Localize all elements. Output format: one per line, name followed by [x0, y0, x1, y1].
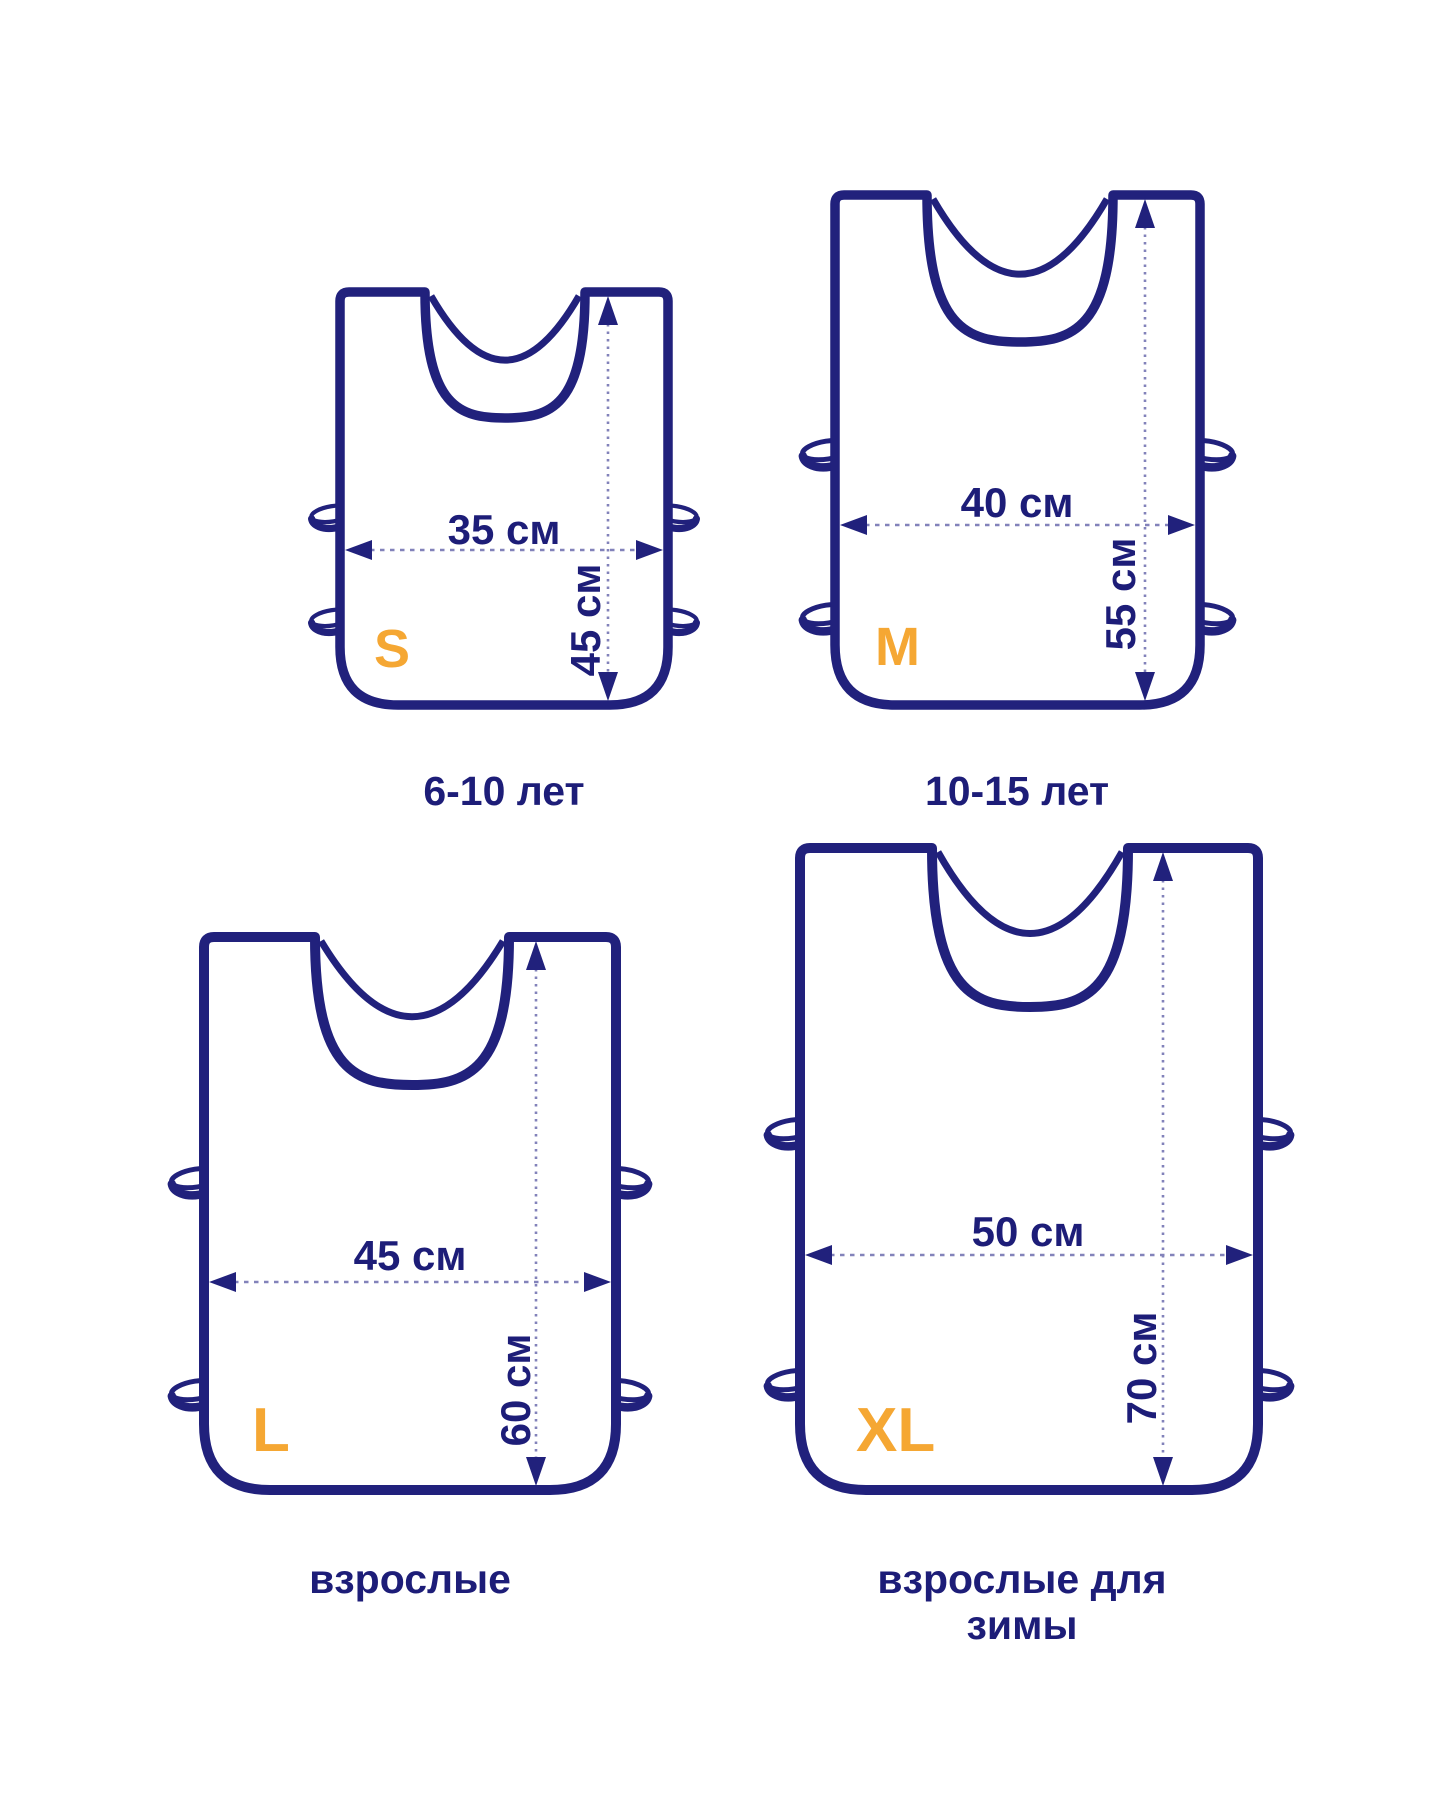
vest-m-size-letter: M: [875, 618, 920, 676]
vest-s-age-caption: 6-10 лет: [344, 768, 664, 814]
vest-m-width-label: 40 см: [961, 479, 1074, 527]
vest-l-drawing: [144, 923, 676, 1504]
vest-m-drawing: [775, 181, 1260, 719]
vest-outline: [800, 848, 1258, 1490]
neckline-inner-arc: [431, 296, 579, 360]
vest-m-age-caption: 10-15 лет: [857, 768, 1177, 814]
vest-s-drawing: [280, 278, 728, 719]
neckline-inner-arc: [933, 199, 1107, 274]
vest-xl-height-label: 70 см: [1118, 1312, 1166, 1425]
vest-l-size-letter: L: [252, 1398, 290, 1464]
vest-xl-drawing: [740, 834, 1318, 1504]
neckline-inner-arc: [321, 941, 503, 1017]
neckline-inner-arc: [938, 852, 1122, 933]
vest-s-size-letter: S: [374, 620, 410, 678]
vest-xl-width-label: 50 см: [972, 1208, 1085, 1256]
vest-l-height-label: 60 см: [492, 1334, 540, 1447]
vest-m-height-label: 55 см: [1097, 538, 1145, 651]
vest-l-age-caption: взрослые: [250, 1556, 570, 1602]
vest-size-chart: 35 см 45 см S 6-10 лет 40 см 55 см M 10-…: [0, 0, 1446, 1809]
vest-s-height-label: 45 см: [562, 564, 610, 677]
vest-s-width-label: 35 см: [448, 506, 561, 554]
vest-xl-size-letter: XL: [856, 1398, 935, 1464]
vest-xl-age-caption: взрослые для зимы: [862, 1556, 1182, 1648]
vest-l-width-label: 45 см: [354, 1232, 467, 1280]
